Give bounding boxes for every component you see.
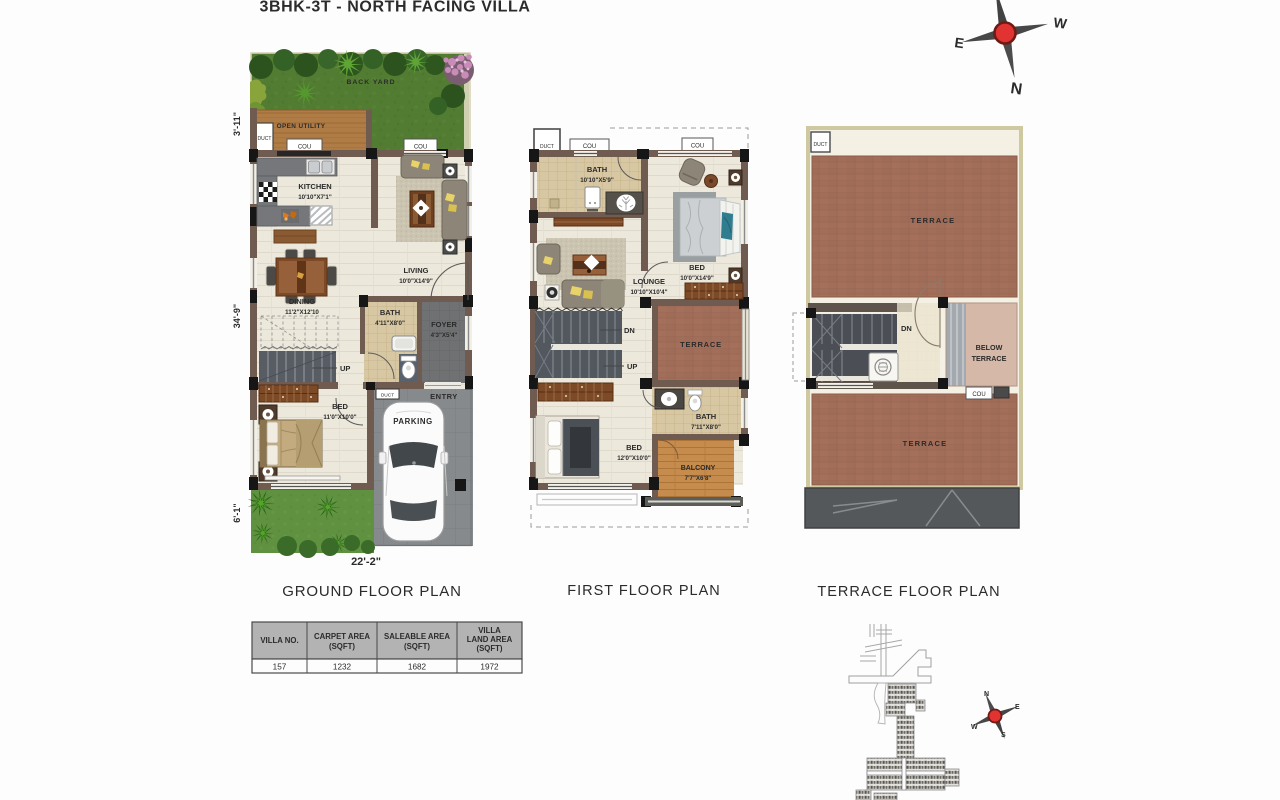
svg-text:LAND AREA: LAND AREA: [467, 635, 513, 644]
svg-text:FIRST FLOOR PLAN: FIRST FLOOR PLAN: [567, 583, 721, 599]
svg-text:10'10"X7'1": 10'10"X7'1": [298, 194, 332, 201]
svg-text:(SQFT): (SQFT): [477, 644, 503, 653]
svg-text:12'0"X10'0": 12'0"X10'0": [617, 455, 651, 462]
svg-text:N: N: [1009, 80, 1023, 98]
svg-text:PARKING: PARKING: [393, 417, 433, 426]
svg-text:TERRACE: TERRACE: [680, 340, 722, 349]
svg-text:TERRACE: TERRACE: [911, 216, 956, 225]
svg-text:6'-1": 6'-1": [232, 503, 242, 522]
svg-text:4'3"X5'4": 4'3"X5'4": [431, 332, 458, 339]
svg-text:157: 157: [273, 663, 287, 672]
svg-text:KITCHEN: KITCHEN: [298, 182, 331, 191]
svg-text:1232: 1232: [333, 663, 352, 672]
svg-text:UP: UP: [340, 364, 350, 373]
svg-text:3'-11": 3'-11": [232, 112, 242, 136]
svg-text:COU: COU: [414, 145, 427, 151]
svg-text:DN: DN: [901, 324, 912, 333]
svg-text:COU: COU: [691, 144, 704, 150]
svg-text:DUCT: DUCT: [540, 144, 554, 150]
svg-text:(SQFT): (SQFT): [329, 642, 355, 651]
svg-text:OPEN UTILITY: OPEN UTILITY: [277, 123, 326, 130]
svg-text:BELOW: BELOW: [976, 343, 1003, 352]
svg-text:SALEABLE AREA: SALEABLE AREA: [384, 632, 450, 641]
svg-text:TERRACE: TERRACE: [972, 354, 1007, 363]
svg-text:34'-9": 34'-9": [232, 304, 242, 328]
svg-text:BED: BED: [689, 263, 705, 272]
svg-text:E: E: [1015, 704, 1020, 711]
svg-text:11'0"X10'0": 11'0"X10'0": [323, 414, 356, 421]
svg-text:COU: COU: [972, 392, 985, 398]
svg-text:1972: 1972: [480, 663, 499, 672]
svg-text:1682: 1682: [408, 663, 427, 672]
svg-text:BATH: BATH: [696, 412, 716, 421]
svg-text:GROUND FLOOR PLAN: GROUND FLOOR PLAN: [282, 583, 461, 600]
svg-text:3BHK-3T - NORTH FACING VILLA: 3BHK-3T - NORTH FACING VILLA: [259, 0, 530, 16]
svg-text:10'10"X5'9": 10'10"X5'9": [580, 177, 614, 184]
svg-text:LIVING: LIVING: [403, 266, 428, 275]
svg-text:S: S: [1001, 732, 1006, 739]
svg-text:BED: BED: [626, 443, 642, 452]
svg-text:7'11"X8'0": 7'11"X8'0": [691, 424, 721, 431]
svg-text:VILLA: VILLA: [478, 626, 501, 635]
svg-text:W: W: [971, 724, 978, 731]
svg-text:BED: BED: [332, 402, 348, 411]
svg-text:UP: UP: [627, 362, 637, 371]
svg-text:11'2"X12'10: 11'2"X12'10: [285, 309, 319, 316]
svg-text:(SQFT): (SQFT): [404, 642, 430, 651]
svg-text:DN: DN: [624, 326, 635, 335]
svg-text:DUCT: DUCT: [814, 142, 828, 148]
svg-text:ENTRY: ENTRY: [430, 392, 458, 401]
svg-text:N: N: [984, 691, 989, 698]
svg-text:LOUNGE: LOUNGE: [633, 277, 665, 286]
svg-text:BATH: BATH: [587, 165, 607, 174]
svg-text:DUCT: DUCT: [258, 136, 272, 142]
svg-text:22'-2": 22'-2": [351, 556, 381, 568]
svg-text:DUCT: DUCT: [381, 393, 394, 399]
svg-text:TERRACE: TERRACE: [903, 439, 948, 448]
svg-text:7'7"X6'8": 7'7"X6'8": [685, 475, 712, 482]
svg-text:COU: COU: [298, 145, 311, 151]
svg-text:BATH: BATH: [380, 308, 400, 317]
svg-text:VILLA NO.: VILLA NO.: [260, 636, 298, 645]
svg-text:DINING: DINING: [289, 297, 315, 306]
svg-text:FOYER: FOYER: [431, 320, 457, 329]
svg-text:COU: COU: [583, 144, 596, 150]
svg-text:BALCONY: BALCONY: [681, 465, 716, 472]
svg-text:10'10"X10'4": 10'10"X10'4": [630, 289, 667, 296]
svg-text:BACK YARD: BACK YARD: [346, 79, 395, 86]
svg-text:10'0"X14'9": 10'0"X14'9": [399, 278, 433, 285]
svg-text:10'0"X14'9": 10'0"X14'9": [680, 275, 714, 282]
svg-text:4'11"X8'0": 4'11"X8'0": [375, 320, 405, 327]
svg-text:CARPET AREA: CARPET AREA: [314, 632, 370, 641]
svg-text:TERRACE FLOOR PLAN: TERRACE FLOOR PLAN: [817, 584, 1000, 600]
